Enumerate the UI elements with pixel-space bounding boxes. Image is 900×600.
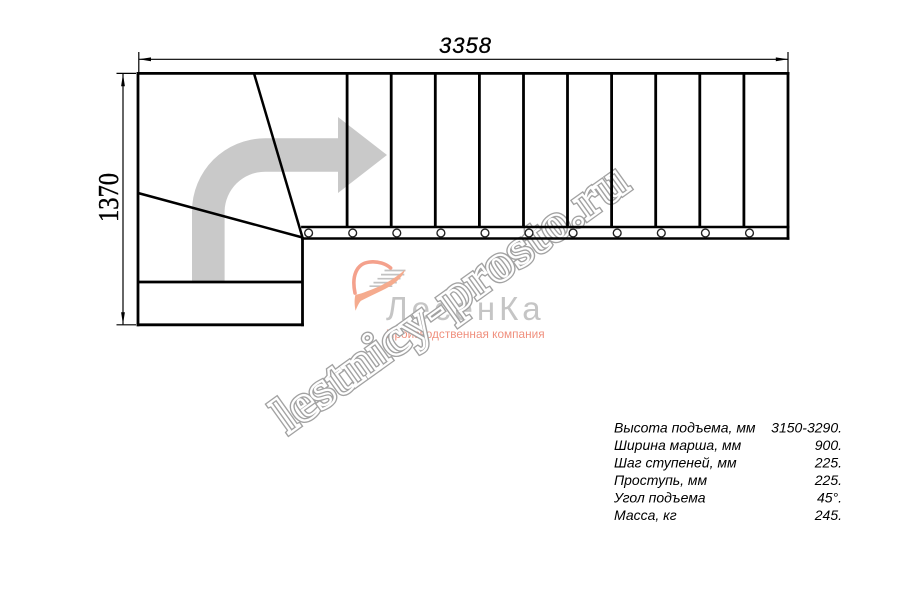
svg-text:1370: 1370 [94, 173, 125, 222]
svg-text:900.: 900. [815, 437, 842, 453]
svg-text:Высота подъема, мм: Высота подъема, мм [614, 420, 756, 436]
svg-text:225.: 225. [814, 455, 842, 471]
svg-text:245.: 245. [814, 507, 842, 523]
svg-text:Проступь, мм: Проступь, мм [614, 472, 708, 488]
svg-text:45°.: 45°. [817, 490, 842, 506]
svg-text:Масса, кг: Масса, кг [614, 507, 677, 523]
svg-text:3150-3290.: 3150-3290. [771, 420, 842, 436]
svg-text:Ширина марша, мм: Ширина марша, мм [614, 437, 742, 453]
svg-text:3358: 3358 [439, 33, 492, 58]
svg-text:Шаг ступеней, мм: Шаг ступеней, мм [614, 455, 737, 471]
svg-text:225.: 225. [814, 472, 842, 488]
svg-text:Угол подъема: Угол подъема [613, 490, 706, 506]
